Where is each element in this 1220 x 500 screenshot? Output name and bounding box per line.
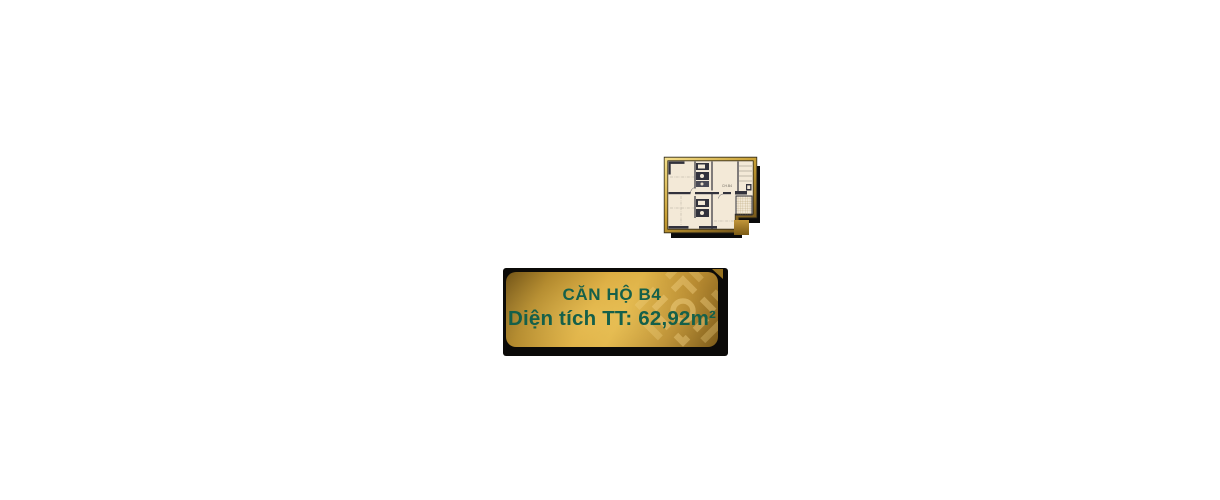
gold-plate: CĂN HỘ B4 Diện tích TT: 62,92m²	[506, 272, 718, 347]
bathroom-fixtures-upper	[696, 163, 709, 187]
apartment-label-card[interactable]: CĂN HỘ B4 Diện tích TT: 62,92m²	[503, 268, 728, 356]
apartment-area: Diện tích TT: 62,92m²	[508, 308, 716, 331]
floorplan-image: CH.B4	[661, 153, 765, 241]
floorplan-unit-code: CH.B4	[722, 184, 732, 188]
gold-accent-square	[734, 220, 749, 235]
card-text-block: CĂN HỘ B4 Diện tích TT: 62,92m²	[506, 272, 718, 347]
apartment-title: CĂN HỘ B4	[563, 286, 662, 305]
loggia-tiles	[736, 196, 752, 215]
floorplan-thumbnail[interactable]: CH.B4	[661, 153, 765, 241]
